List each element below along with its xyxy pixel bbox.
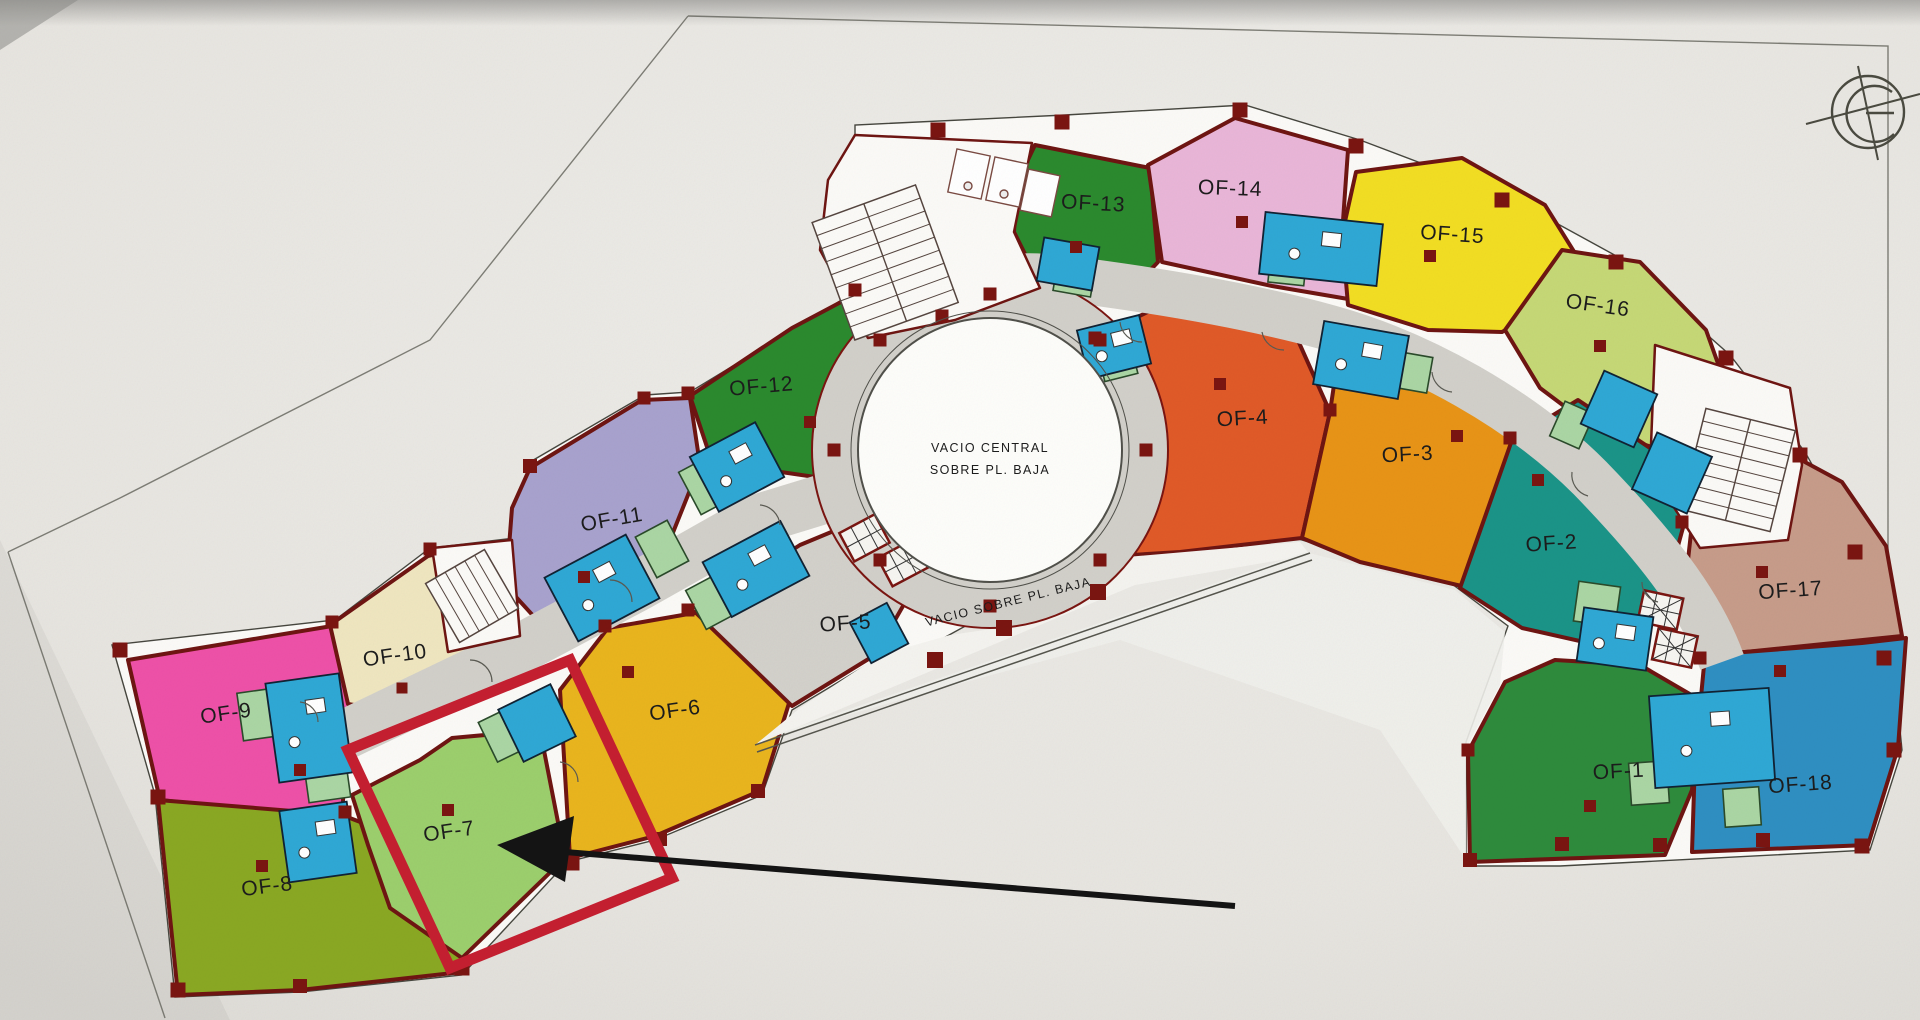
photo-grain-overlay [0, 0, 1920, 1020]
floor-plan-drawing: VACIO CENTRAL SOBRE PL. BAJA VACIO SOBRE… [0, 0, 1920, 1020]
scanned-floor-plan-photo: VACIO CENTRAL SOBRE PL. BAJA VACIO SOBRE… [0, 0, 1920, 1020]
